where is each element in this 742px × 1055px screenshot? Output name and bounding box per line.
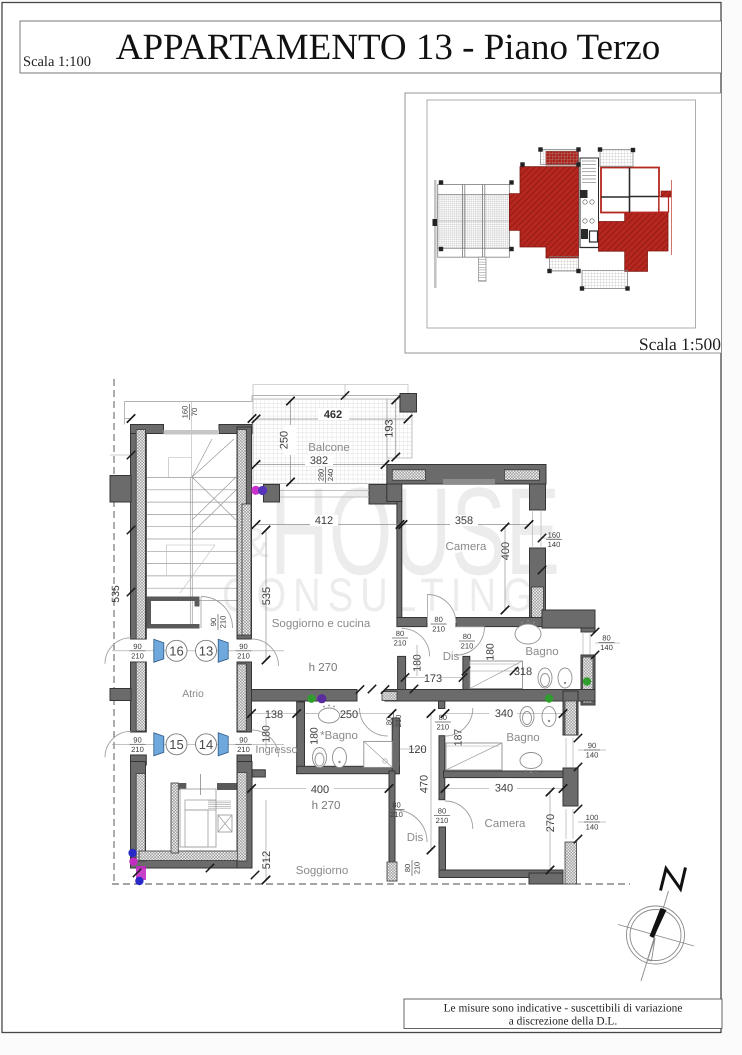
svg-text:140: 140	[600, 643, 613, 652]
svg-text:240: 240	[326, 469, 335, 481]
svg-text:358: 358	[455, 515, 473, 527]
svg-text:APPARTAMENTO 13 - Piano Terzo: APPARTAMENTO 13 - Piano Terzo	[116, 27, 661, 68]
svg-text:280: 280	[317, 469, 326, 481]
svg-text:90: 90	[239, 736, 247, 745]
svg-text:Camera: Camera	[446, 541, 488, 553]
svg-text:*Bagno: *Bagno	[320, 730, 358, 742]
svg-text:80: 80	[396, 629, 404, 638]
svg-text:80: 80	[392, 801, 400, 810]
svg-text:193: 193	[384, 419, 396, 437]
svg-text:160: 160	[548, 531, 561, 540]
svg-text:h 270: h 270	[312, 800, 341, 812]
svg-text:Soggiorno: Soggiorno	[296, 865, 348, 877]
svg-text:180: 180	[261, 725, 273, 743]
svg-text:16: 16	[169, 643, 183, 658]
svg-text:187: 187	[453, 729, 465, 747]
svg-text:Bagno: Bagno	[525, 646, 558, 658]
svg-text:80: 80	[434, 615, 442, 624]
svg-text:535: 535	[110, 585, 122, 603]
svg-text:400: 400	[311, 784, 329, 796]
svg-text:210: 210	[432, 625, 445, 634]
svg-text:270: 270	[545, 814, 557, 832]
svg-text:400: 400	[500, 542, 512, 560]
svg-text:100: 100	[586, 813, 599, 822]
svg-text:173: 173	[424, 673, 442, 685]
svg-text:Ingresso: Ingresso	[255, 744, 297, 756]
svg-text:90: 90	[133, 736, 141, 745]
svg-text:210: 210	[461, 642, 474, 651]
svg-text:90: 90	[239, 642, 247, 651]
svg-text:80: 80	[439, 713, 447, 722]
svg-text:470: 470	[419, 775, 431, 793]
svg-text:15: 15	[169, 737, 183, 752]
svg-text:13: 13	[199, 643, 213, 658]
svg-text:Soggiorno e cucina: Soggiorno e cucina	[272, 618, 371, 630]
svg-text:210: 210	[413, 862, 422, 874]
svg-text:210: 210	[394, 715, 403, 728]
svg-text:340: 340	[495, 708, 513, 720]
svg-text:Bagno: Bagno	[506, 732, 539, 744]
svg-text:138: 138	[265, 709, 283, 721]
svg-text:210: 210	[394, 639, 407, 648]
svg-text:Atrio: Atrio	[182, 688, 204, 700]
svg-text:210: 210	[237, 651, 250, 660]
svg-text:Scala 1:100: Scala 1:100	[23, 54, 91, 70]
svg-text:Le misure sono indicative - su: Le misure sono indicative - suscettibili…	[444, 1003, 683, 1015]
svg-text:535: 535	[261, 587, 273, 605]
svg-text:90: 90	[588, 741, 596, 750]
svg-text:80: 80	[602, 634, 610, 643]
svg-text:210: 210	[237, 745, 250, 754]
svg-text:462: 462	[324, 409, 342, 421]
svg-text:180: 180	[412, 654, 424, 672]
svg-text:h 270: h 270	[309, 662, 338, 674]
svg-text:90: 90	[133, 642, 141, 651]
svg-text:210: 210	[390, 810, 403, 819]
svg-text:120: 120	[408, 744, 426, 756]
svg-text:180: 180	[485, 643, 497, 661]
svg-text:Dis: Dis	[443, 651, 460, 663]
svg-text:Camera: Camera	[485, 818, 527, 830]
svg-text:160: 160	[181, 406, 190, 419]
svg-text:14: 14	[199, 737, 213, 752]
svg-text:210: 210	[131, 651, 144, 660]
svg-text:250: 250	[340, 709, 358, 721]
svg-text:80: 80	[463, 632, 471, 641]
svg-text:210: 210	[131, 745, 144, 754]
svg-text:90: 90	[209, 618, 218, 626]
svg-text:Balcone: Balcone	[308, 442, 350, 454]
svg-text:180: 180	[309, 727, 321, 745]
svg-text:412: 412	[315, 515, 333, 527]
svg-text:a discrezione della D.L.: a discrezione della D.L.	[509, 1016, 618, 1028]
svg-text:80: 80	[385, 717, 394, 725]
svg-text:Dis: Dis	[407, 832, 424, 844]
svg-text:70: 70	[190, 408, 199, 416]
svg-text:250: 250	[279, 431, 291, 449]
svg-text:80: 80	[438, 807, 446, 816]
svg-text:382: 382	[310, 455, 328, 467]
svg-text:Scala 1:500: Scala 1:500	[639, 334, 721, 354]
svg-text:80: 80	[403, 864, 412, 872]
svg-text:140: 140	[586, 823, 599, 832]
svg-text:140: 140	[548, 540, 561, 549]
svg-text:210: 210	[436, 816, 449, 825]
svg-text:140: 140	[586, 751, 599, 760]
svg-text:340: 340	[495, 783, 513, 795]
svg-text:512: 512	[261, 851, 273, 869]
svg-text:210: 210	[219, 616, 228, 629]
svg-text:210: 210	[436, 723, 449, 732]
